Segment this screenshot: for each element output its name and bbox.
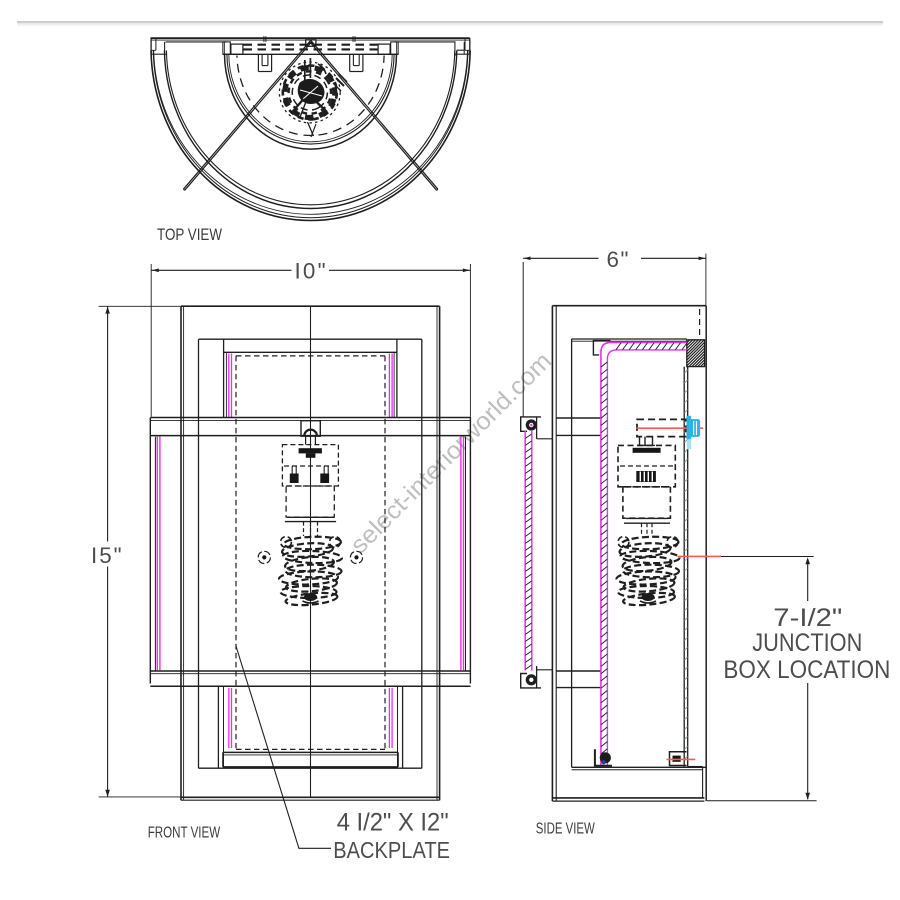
svg-text:I0": I0" (295, 258, 328, 283)
svg-text:6": 6" (607, 247, 630, 272)
svg-text:I5": I5" (91, 543, 124, 568)
svg-text:FRONT VIEW: FRONT VIEW (148, 824, 221, 841)
svg-text:JUNCTION: JUNCTION (752, 629, 862, 657)
svg-text:7-I/2": 7-I/2" (773, 604, 842, 632)
svg-text:BOX LOCATION: BOX LOCATION (723, 656, 890, 684)
svg-text:BACKPLATE: BACKPLATE (333, 837, 450, 863)
svg-text:SIDE VIEW: SIDE VIEW (536, 820, 595, 837)
svg-text:TOP VIEW: TOP VIEW (157, 225, 222, 244)
svg-text:4 I/2" X I2": 4 I/2" X I2" (337, 809, 449, 837)
